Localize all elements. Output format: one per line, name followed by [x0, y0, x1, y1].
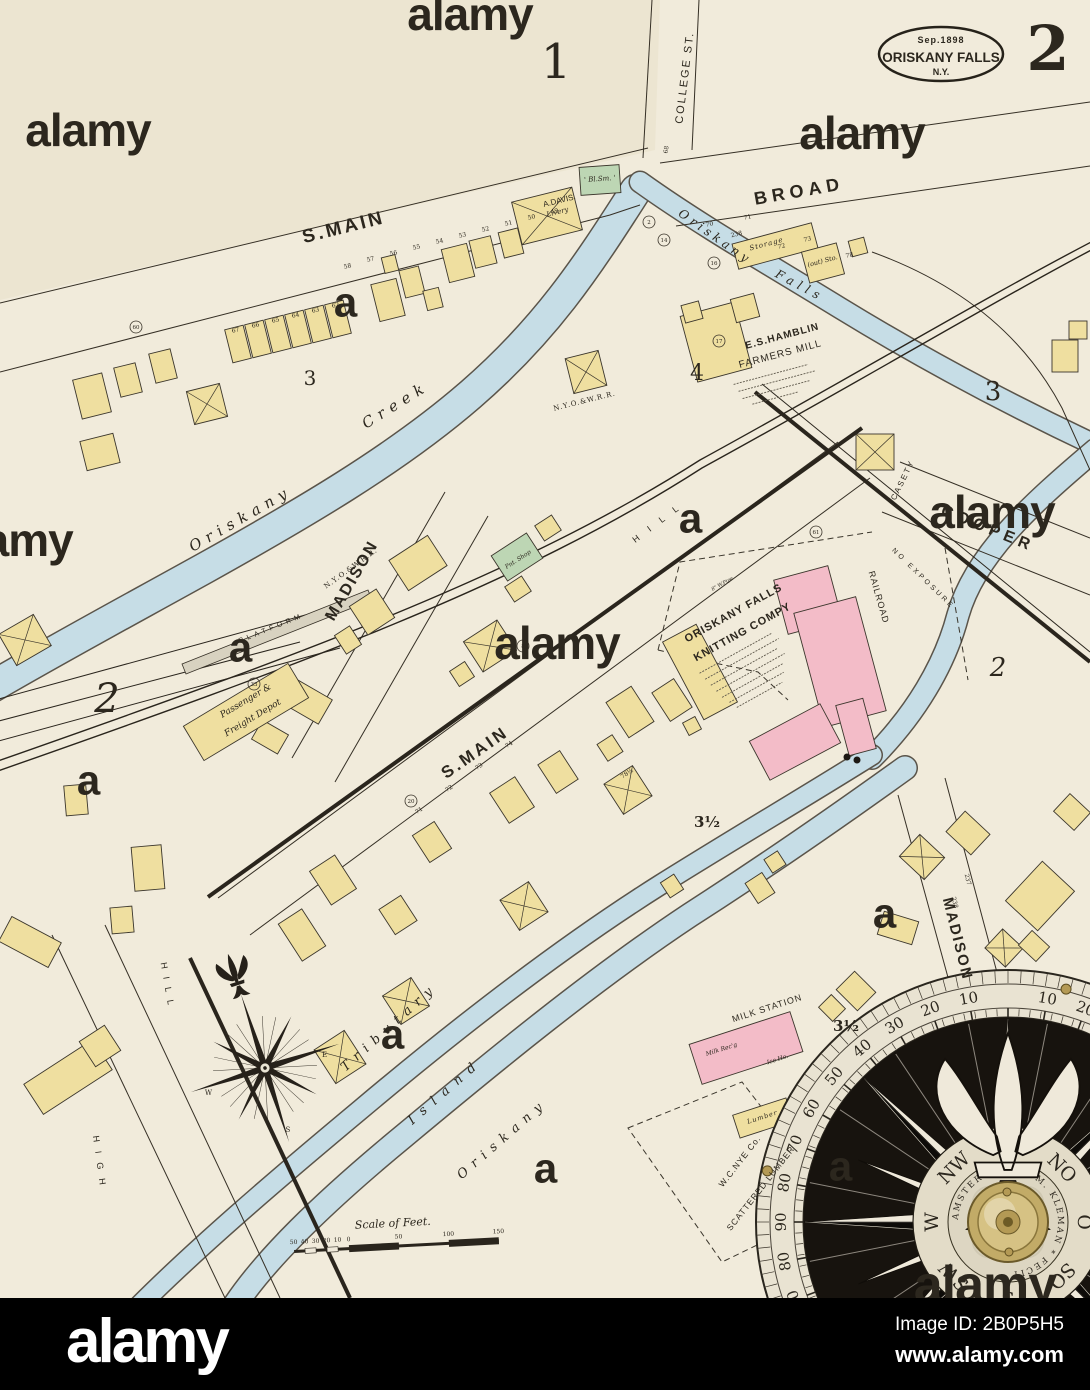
scale-tick: 30: [312, 1238, 320, 1245]
scale-tick: 20: [323, 1237, 331, 1244]
svg-text:16: 16: [711, 261, 718, 267]
watermark: alamy: [799, 107, 926, 159]
alamy-logo: alamy: [66, 1306, 227, 1377]
building: [131, 845, 165, 891]
lot-number: 68: [662, 145, 670, 154]
svg-text:80: 80: [774, 1250, 795, 1272]
watermark: alamy: [929, 486, 1056, 538]
title-oval: Sep.1898 ORISKANY FALLS N.Y.: [879, 27, 1003, 81]
sanborn-map: Scale of Feet. 5040302010050100150 WES 1…: [0, 0, 1090, 1298]
svg-text:2: 2: [647, 220, 651, 226]
title-state: N.Y.: [933, 67, 950, 77]
watermark: alamy: [0, 514, 74, 566]
scale-tick: 100: [443, 1231, 455, 1239]
svg-text:10: 10: [958, 988, 980, 1009]
svg-text:S: S: [286, 1126, 291, 1134]
building: [1069, 321, 1087, 339]
watermark: a: [334, 279, 358, 326]
scale-tick: 50: [395, 1233, 403, 1240]
label-block-2b: 2: [989, 653, 1007, 683]
compass-letter: W: [921, 1212, 943, 1232]
svg-text:E: E: [322, 1051, 327, 1059]
sheet-number-left: 1: [541, 34, 572, 90]
svg-text:61: 61: [813, 530, 820, 536]
alamy-url[interactable]: www.alamy.com: [895, 1342, 1064, 1368]
image-id: Image ID: 2B0P5H5: [895, 1314, 1064, 1336]
watermark: a: [829, 1143, 853, 1190]
building: [110, 906, 134, 934]
svg-text:14: 14: [661, 238, 668, 244]
label-block-4: 4: [690, 361, 704, 386]
watermark: a: [534, 1145, 558, 1192]
watermark: a: [873, 890, 897, 937]
scale-tick: 50: [290, 1239, 298, 1246]
svg-text:10: 10: [1036, 988, 1058, 1009]
watermark: alamy: [407, 0, 534, 40]
title-name: ORISKANY FALLS: [882, 50, 1000, 65]
watermark: alamy: [494, 617, 621, 669]
alamy-footer-bar: alamy Image ID: 2B0P5H5 www.alamy.com: [0, 1298, 1090, 1390]
label-block-3a: 3: [304, 366, 317, 390]
label-block-3half-a: 3½: [694, 813, 720, 831]
watermark: alamy: [25, 104, 152, 156]
alamy-stock-photo-page: Scale of Feet. 5040302010050100150 WES 1…: [0, 0, 1090, 1390]
watermark: a: [77, 757, 101, 804]
svg-text:33: 33: [251, 682, 258, 688]
mill-door-dot: [854, 757, 861, 764]
page-number: 2: [1026, 12, 1069, 85]
building: [856, 434, 894, 470]
svg-text:17: 17: [716, 339, 723, 345]
label-block-2a: 2: [93, 676, 119, 722]
svg-text:20: 20: [408, 799, 415, 805]
scale-tick: 150: [492, 1228, 504, 1236]
label-block-3b: 3: [985, 377, 1002, 407]
watermark: a: [381, 1011, 405, 1058]
scale-tick: 0: [346, 1236, 350, 1243]
scale-tick: 40: [301, 1238, 309, 1245]
watermark: alamy: [914, 1256, 1058, 1298]
svg-text:90: 90: [772, 1212, 790, 1231]
watermark: a: [229, 624, 253, 671]
watermark: a: [679, 495, 703, 542]
title-date: Sep.1898: [917, 35, 964, 45]
compass-letter: O: [1073, 1214, 1090, 1230]
label-block-3half-b: 3½: [833, 1017, 859, 1035]
svg-text:60: 60: [133, 325, 140, 331]
mill-door-dot: [844, 754, 851, 761]
scale-tick: 10: [334, 1236, 342, 1243]
building: [1052, 340, 1078, 372]
building: [681, 301, 703, 323]
svg-text:W: W: [205, 1089, 213, 1097]
